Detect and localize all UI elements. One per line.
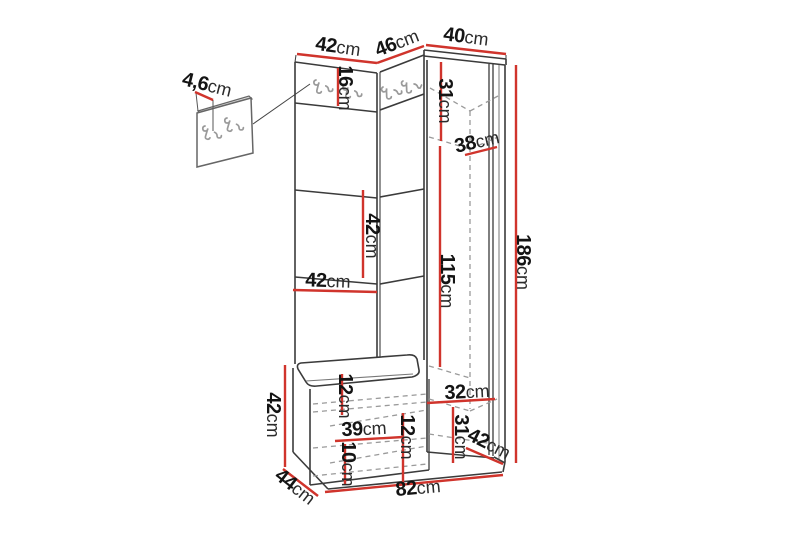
dim-unit: cm	[416, 476, 442, 498]
dim-value: 12	[396, 414, 418, 435]
dim-label-total-width: 82cm	[395, 476, 442, 500]
dim-value: 16	[334, 65, 356, 86]
dim-label-bench-opening-width: 39cm	[341, 418, 387, 440]
dim-unit: cm	[465, 381, 490, 402]
dim-unit: cm	[335, 37, 362, 60]
detail-panel	[196, 93, 253, 167]
dim-value: 39	[341, 418, 363, 441]
dim-value: 10	[337, 441, 359, 462]
dim-unit: cm	[362, 235, 382, 259]
dim-unit: cm	[263, 414, 283, 438]
dim-value: 186	[512, 234, 534, 266]
coat-hook-icon	[381, 85, 402, 100]
dim-unit: cm	[397, 436, 417, 460]
dim-unit: cm	[335, 87, 355, 111]
dim-label-seat-clearance: 12cm	[335, 373, 355, 418]
dim-unit: cm	[335, 395, 355, 419]
dimension-diagram: 42cm 46cm 40cm 4,6cm 16cm 31cm 38cm 186c…	[0, 0, 800, 533]
coat-hook-icon	[401, 79, 422, 94]
dim-label-hook-panel-height: 16cm	[335, 65, 355, 110]
dim-label-bench-inner-height: 12cm	[397, 414, 417, 459]
dim-label-total-height: 186cm	[513, 234, 533, 290]
dim-label-middle-panel-height: 42cm	[362, 213, 382, 258]
coat-hook-icon	[312, 80, 333, 95]
dim-value: 32	[444, 381, 466, 404]
dim-unit: cm	[463, 27, 489, 50]
dim-value: 42	[262, 392, 284, 413]
dim-unit: cm	[513, 266, 533, 290]
dim-value: 12	[334, 373, 356, 394]
dim-value: 42	[361, 213, 383, 234]
dim-value: 42	[305, 269, 327, 292]
dim-value: 82	[395, 477, 418, 501]
dim-label-cabinet-top-section: 31cm	[435, 78, 455, 123]
dim-label-top-right-width: 40cm	[442, 24, 489, 49]
dim-label-cabinet-bottom-width: 32cm	[444, 381, 490, 403]
dim-value: 31	[434, 78, 456, 99]
dim-unit: cm	[362, 418, 387, 439]
dim-unit: cm	[437, 284, 457, 308]
dim-unit: cm	[326, 271, 351, 292]
bench-seat-cushion	[297, 355, 419, 386]
dim-label-middle-panel-width: 42cm	[305, 270, 351, 292]
dim-label-door-section: 115cm	[437, 254, 457, 309]
dim-unit: cm	[338, 463, 358, 487]
dim-label-plinth-height: 10cm	[338, 441, 358, 486]
dim-label-bench-height: 42cm	[263, 392, 283, 437]
hook-panel-angled	[380, 55, 424, 360]
dim-unit: cm	[435, 100, 455, 124]
dim-value: 115	[436, 254, 458, 285]
